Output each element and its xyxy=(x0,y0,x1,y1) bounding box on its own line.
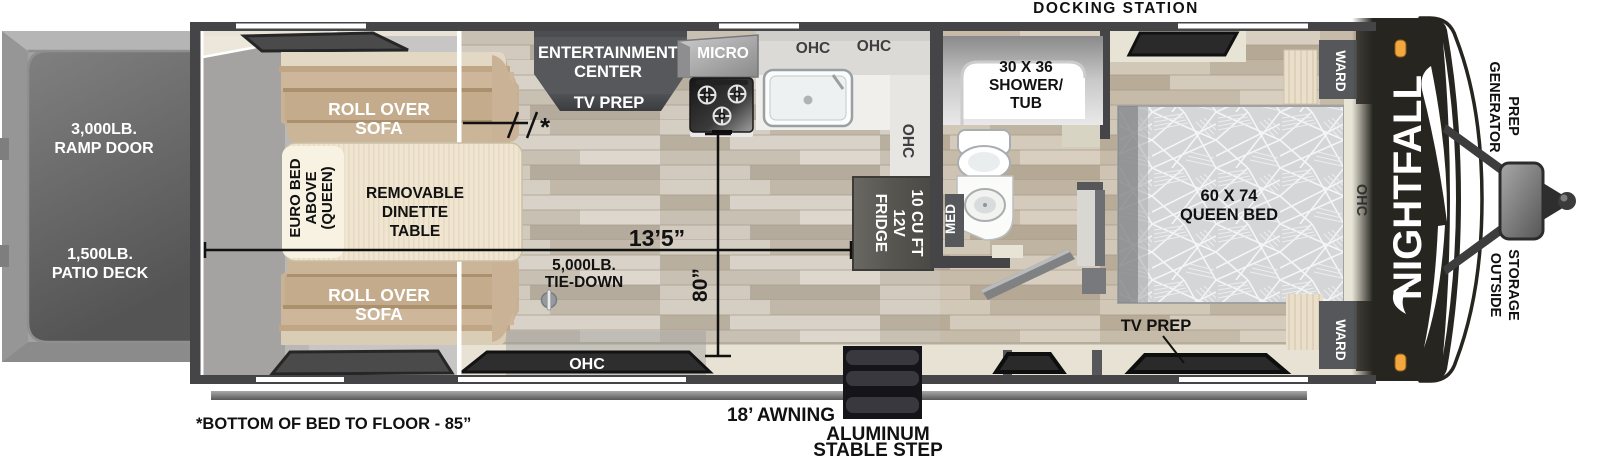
svg-text:30 X 36: 30 X 36 xyxy=(999,59,1053,76)
svg-text:ROLL OVER: ROLL OVER xyxy=(328,99,430,119)
svg-text:OHC: OHC xyxy=(899,124,916,158)
svg-text:SOFA: SOFA xyxy=(355,118,403,138)
svg-text:(QUEEN): (QUEEN) xyxy=(319,166,336,229)
svg-text:TUB: TUB xyxy=(1010,95,1042,112)
svg-text:NIGHTFALL: NIGHTFALL xyxy=(1386,75,1430,300)
svg-text:PATIO DECK: PATIO DECK xyxy=(52,265,149,282)
svg-text:CENTER: CENTER xyxy=(574,63,642,81)
svg-text:WARD: WARD xyxy=(1333,50,1348,91)
svg-text:5,000LB.: 5,000LB. xyxy=(552,257,616,274)
svg-text:OUTSIDE: OUTSIDE xyxy=(1487,253,1503,318)
svg-text:OHC: OHC xyxy=(796,40,830,57)
svg-text:80”: 80” xyxy=(689,268,712,302)
svg-text:DOCKING STATION: DOCKING STATION xyxy=(1033,0,1199,17)
svg-text:3,000LB.: 3,000LB. xyxy=(71,121,137,138)
svg-text:WARD: WARD xyxy=(1333,319,1348,360)
svg-text:STABLE STEP: STABLE STEP xyxy=(813,440,943,457)
svg-text:RAMP DOOR: RAMP DOOR xyxy=(54,140,154,157)
svg-text:12V: 12V xyxy=(890,209,907,237)
svg-text:ABOVE: ABOVE xyxy=(303,171,320,224)
svg-text:*BOTTOM OF BED TO FLOOR - 85”: *BOTTOM OF BED TO FLOOR - 85” xyxy=(196,415,471,433)
svg-text:GENERATOR: GENERATOR xyxy=(1486,61,1502,153)
svg-text:MED: MED xyxy=(943,204,958,234)
svg-text:REMOVABLE: REMOVABLE xyxy=(366,185,464,202)
svg-text:TABLE: TABLE xyxy=(390,223,441,240)
svg-text:13’5”: 13’5” xyxy=(629,225,685,251)
svg-text:FRIDGE: FRIDGE xyxy=(872,194,889,253)
svg-text:1,500LB.: 1,500LB. xyxy=(67,246,133,263)
svg-text:SHOWER/: SHOWER/ xyxy=(989,77,1064,94)
svg-text:SOFA: SOFA xyxy=(355,304,403,324)
svg-text:PREP: PREP xyxy=(1505,96,1521,136)
svg-text:DINETTE: DINETTE xyxy=(382,204,448,221)
svg-text:TIE-DOWN: TIE-DOWN xyxy=(545,274,623,291)
svg-text:60 X 74: 60 X 74 xyxy=(1201,187,1259,205)
svg-text:QUEEN BED: QUEEN BED xyxy=(1180,206,1278,224)
svg-text:ENTERTAINMENT: ENTERTAINMENT xyxy=(538,44,678,62)
svg-text:TV PREP: TV PREP xyxy=(1121,317,1192,335)
svg-text:*: * xyxy=(540,112,551,142)
svg-text:ROLL OVER: ROLL OVER xyxy=(328,285,430,305)
svg-text:EURO BED: EURO BED xyxy=(287,158,304,237)
svg-text:TV PREP: TV PREP xyxy=(574,94,645,112)
svg-text:MICRO: MICRO xyxy=(697,45,749,62)
svg-text:OHC: OHC xyxy=(569,356,605,373)
svg-text:18’ AWNING: 18’ AWNING xyxy=(727,405,835,426)
svg-text:STORAGE: STORAGE xyxy=(1505,249,1521,321)
svg-text:OHC: OHC xyxy=(857,38,891,55)
svg-text:10 CU FT: 10 CU FT xyxy=(908,189,925,257)
